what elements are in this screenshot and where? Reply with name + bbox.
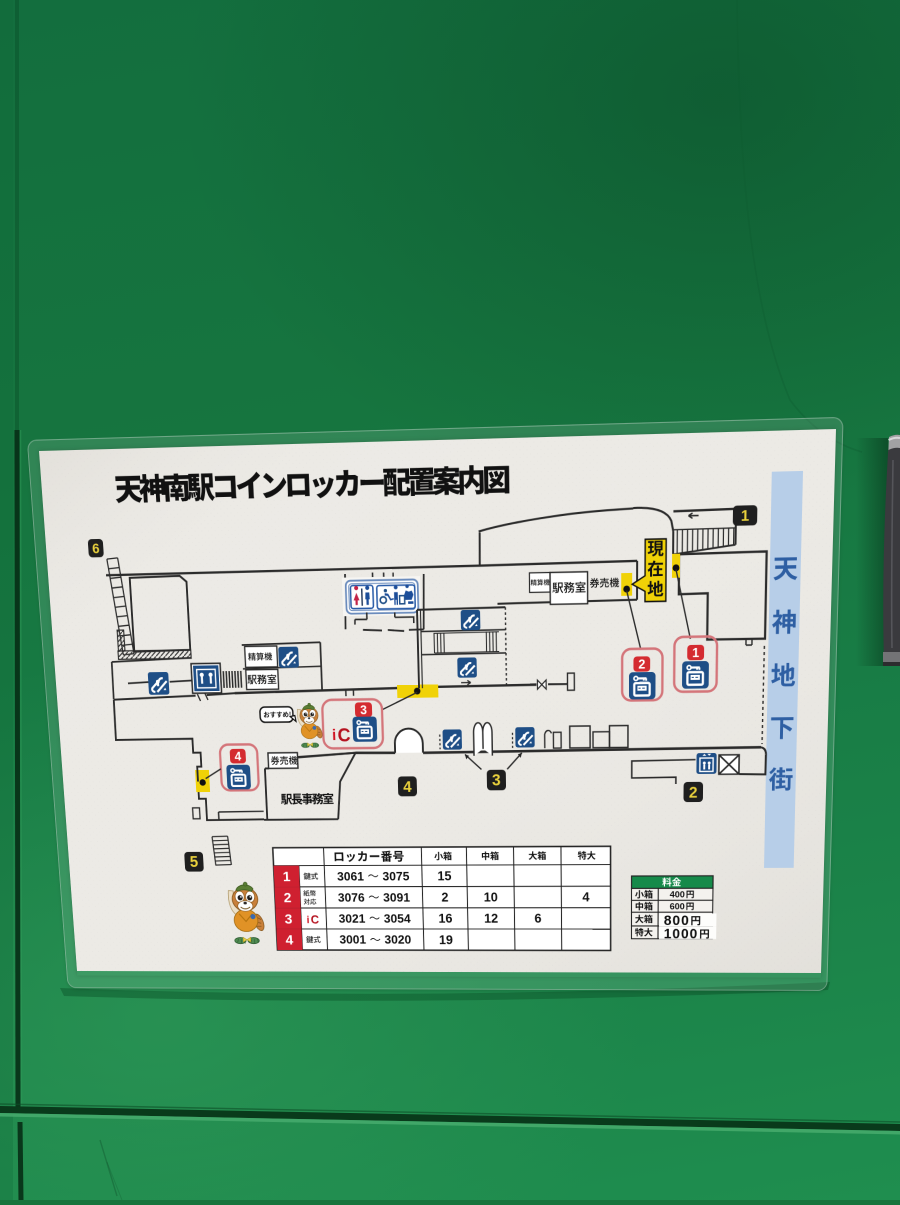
svg-text:2: 2	[689, 784, 698, 801]
svg-text:～: ～	[370, 933, 381, 946]
svg-text:3001: 3001	[339, 933, 367, 947]
svg-text:2: 2	[283, 890, 291, 906]
svg-text:3054: 3054	[384, 912, 412, 926]
svg-text:2: 2	[441, 890, 449, 905]
svg-text:15: 15	[437, 868, 452, 883]
svg-text:3061: 3061	[337, 869, 365, 883]
svg-text:～: ～	[369, 912, 380, 925]
svg-text:16: 16	[438, 911, 453, 926]
svg-text:1: 1	[741, 507, 750, 525]
svg-text:600: 600	[670, 902, 685, 912]
svg-text:3: 3	[284, 912, 292, 927]
svg-text:3075: 3075	[382, 869, 410, 883]
svg-text:C: C	[337, 725, 351, 746]
svg-text:6: 6	[534, 911, 541, 926]
svg-text:3: 3	[492, 771, 501, 789]
svg-text:19: 19	[439, 932, 454, 947]
svg-text:1: 1	[692, 645, 699, 660]
svg-text:4: 4	[285, 933, 294, 948]
svg-text:1: 1	[282, 869, 291, 885]
svg-text:4: 4	[582, 889, 589, 904]
svg-text:～: ～	[368, 891, 380, 904]
svg-text:3076: 3076	[338, 891, 365, 905]
svg-text:3091: 3091	[383, 890, 411, 904]
svg-text:4: 4	[403, 778, 413, 795]
svg-text:3021: 3021	[338, 912, 366, 926]
svg-text:C: C	[310, 913, 319, 927]
svg-text:400: 400	[670, 890, 685, 900]
svg-text:12: 12	[484, 911, 499, 926]
svg-text:～: ～	[367, 870, 379, 883]
svg-text:2: 2	[638, 657, 645, 672]
svg-text:i: i	[332, 727, 337, 744]
svg-text:5: 5	[189, 853, 198, 870]
svg-text:3: 3	[360, 703, 367, 718]
svg-text:1000: 1000	[664, 927, 699, 942]
svg-text:6: 6	[92, 541, 100, 557]
svg-text:10: 10	[484, 890, 499, 905]
svg-text:i: i	[306, 915, 309, 926]
svg-text:3020: 3020	[384, 933, 411, 947]
